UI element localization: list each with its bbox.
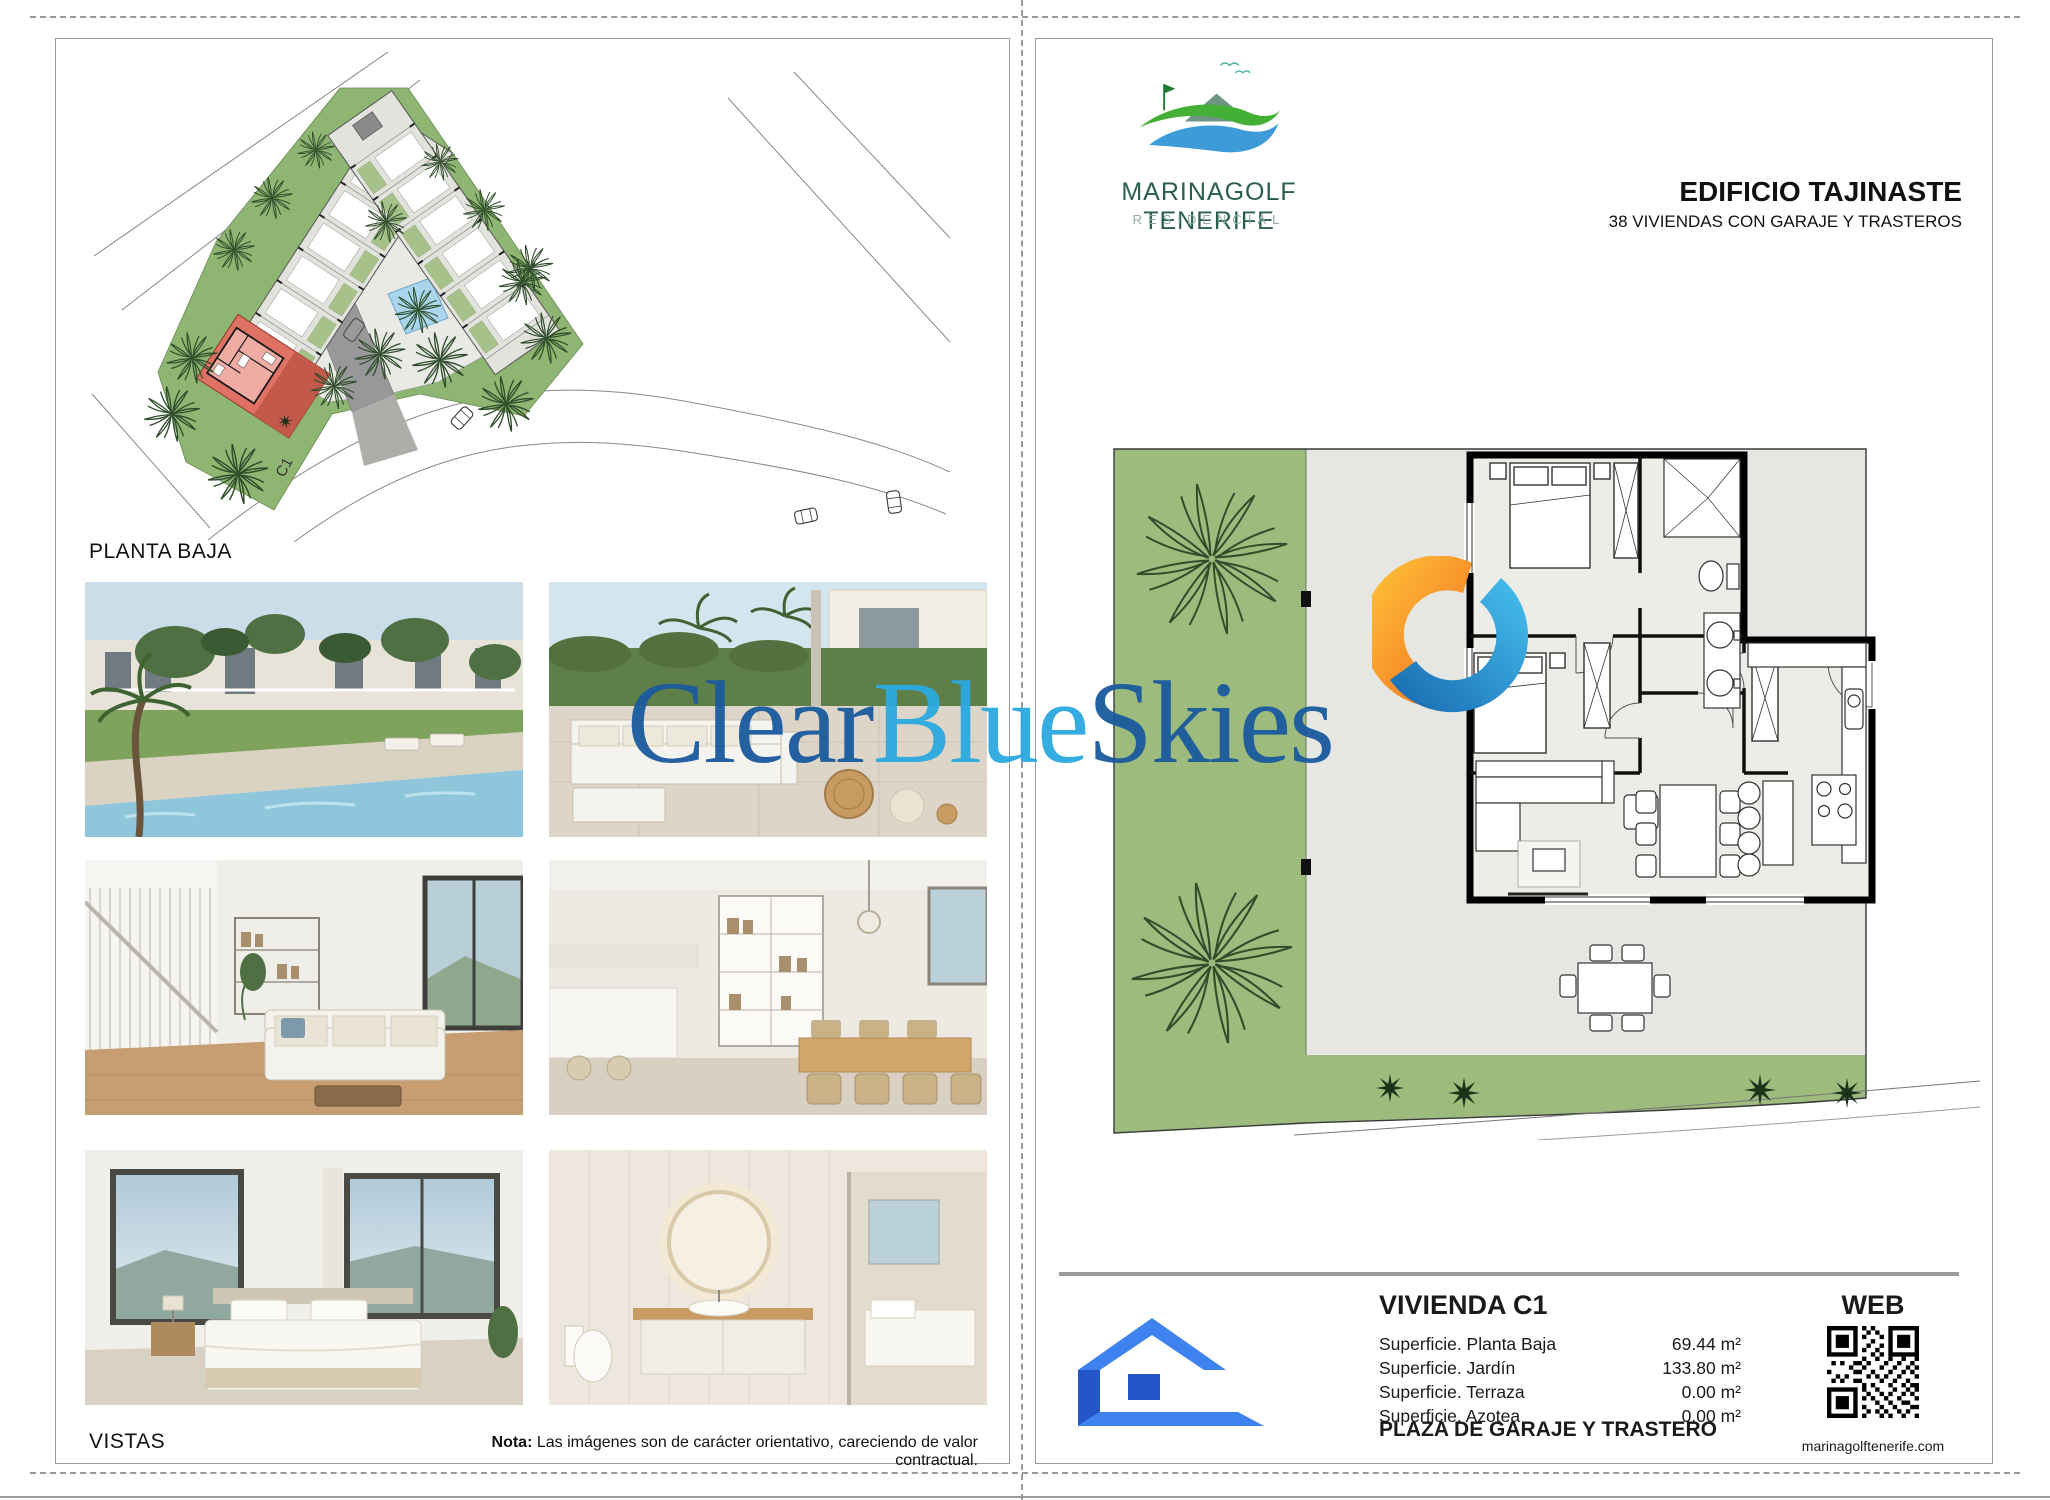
photo-bathroom xyxy=(549,1150,987,1405)
photo-pool-garden xyxy=(85,582,523,837)
surface-label: Superficie. Terraza xyxy=(1379,1380,1525,1404)
photo-living-room xyxy=(85,860,523,1115)
unit-title: VIVIENDA C1 xyxy=(1379,1290,1548,1321)
building-title: EDIFICIO TAJINASTE xyxy=(1500,176,1962,208)
unit-card-rule xyxy=(1059,1272,1959,1276)
qr-code xyxy=(1827,1326,1919,1418)
surface-row: Superficie. Planta Baja 69.44 m² xyxy=(1379,1332,1741,1356)
surface-row: Superficie. Terraza 0.00 m² xyxy=(1379,1380,1741,1404)
crop-mark-top xyxy=(30,16,2020,18)
surface-label: Superficie. Jardín xyxy=(1379,1356,1515,1380)
web-url: marinagolftenerife.com xyxy=(1793,1438,1953,1454)
disclaimer-note-text: Las imágenes son de carácter orientativo… xyxy=(532,1434,978,1469)
brochure-sheet: C1 PLANTA BAJA xyxy=(0,0,2050,1500)
brand-name: MARINAGOLF TENERIFE xyxy=(1079,178,1339,236)
unit-footer: PLAZA DE GARAJE Y TRASTERO xyxy=(1379,1418,1717,1442)
disclaimer-note: Nota: Las imágenes son de carácter orien… xyxy=(478,1434,978,1470)
photo-terrace-lounge xyxy=(549,582,987,837)
surface-row: Superficie. Jardín 133.80 m² xyxy=(1379,1356,1741,1380)
brand-logo xyxy=(1130,56,1290,174)
floor-plan xyxy=(1108,443,1980,1140)
photo-dining-kitchen xyxy=(549,860,987,1115)
surface-table: Superficie. Planta Baja 69.44 m² Superfi… xyxy=(1379,1332,1741,1428)
photos-label: VISTAS xyxy=(89,1430,165,1454)
sheet-bottom-edge xyxy=(0,1496,2050,1498)
plan-label: PLANTA BAJA xyxy=(89,540,232,564)
brand-tagline: RESIDENCIAL xyxy=(1079,212,1339,227)
building-subtitle: 38 VIVIENDAS CON GARAJE Y TRASTEROS xyxy=(1500,212,1962,232)
house-icon xyxy=(1072,1308,1272,1428)
photo-bedroom xyxy=(85,1150,523,1405)
fold-line xyxy=(1021,0,1023,1500)
surface-label: Superficie. Planta Baja xyxy=(1379,1332,1556,1356)
site-plan: C1 xyxy=(88,42,950,542)
swirl-logo-icon xyxy=(1372,556,1532,720)
web-label: WEB xyxy=(1793,1290,1953,1321)
disclaimer-note-bold: Nota: xyxy=(492,1434,533,1451)
crop-mark-bottom xyxy=(30,1472,2020,1474)
